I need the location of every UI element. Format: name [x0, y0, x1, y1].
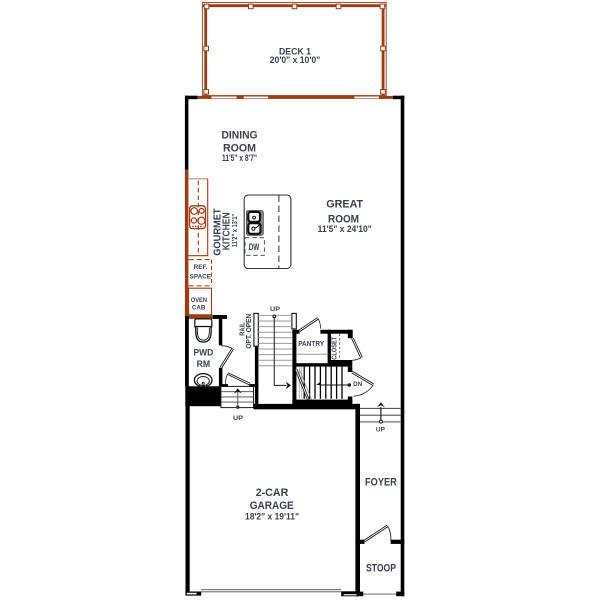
svg-text:PANTRY: PANTRY	[298, 339, 324, 348]
svg-text:STOOP: STOOP	[366, 562, 396, 574]
svg-text:18'2" x 19'11": 18'2" x 19'11"	[245, 512, 299, 522]
svg-text:DINING: DINING	[222, 130, 258, 142]
svg-text:REF.: REF.	[194, 264, 208, 271]
svg-text:FOYER: FOYER	[365, 477, 397, 489]
svg-text:PWD: PWD	[194, 347, 214, 358]
svg-text:11'2" x 13'1": 11'2" x 13'1"	[232, 214, 239, 247]
svg-text:OPT. OPEN: OPT. OPEN	[246, 314, 253, 349]
svg-text:DN: DN	[353, 381, 362, 388]
svg-text:DW: DW	[249, 242, 260, 253]
svg-text:2-CAR: 2-CAR	[256, 487, 289, 499]
svg-text:11'5" x 8'7": 11'5" x 8'7"	[222, 153, 257, 163]
svg-text:UP: UP	[233, 415, 243, 422]
svg-text:SPACE: SPACE	[190, 274, 212, 281]
svg-text:CAB: CAB	[192, 304, 206, 311]
svg-text:RAIL: RAIL	[240, 322, 247, 336]
svg-text:11'5" x 24'10": 11'5" x 24'10"	[318, 224, 372, 234]
svg-text:GREAT: GREAT	[326, 199, 363, 211]
svg-text:RM: RM	[197, 359, 211, 370]
svg-text:UP: UP	[376, 427, 385, 434]
svg-text:GARAGE: GARAGE	[250, 500, 294, 512]
svg-text:CLOSET: CLOSET	[332, 336, 339, 360]
svg-text:OVEN: OVEN	[191, 297, 207, 304]
svg-text:UP: UP	[270, 306, 280, 313]
svg-text:20'0" x 10'0": 20'0" x 10'0"	[270, 55, 321, 65]
svg-text:KITCHEN: KITCHEN	[220, 212, 232, 250]
